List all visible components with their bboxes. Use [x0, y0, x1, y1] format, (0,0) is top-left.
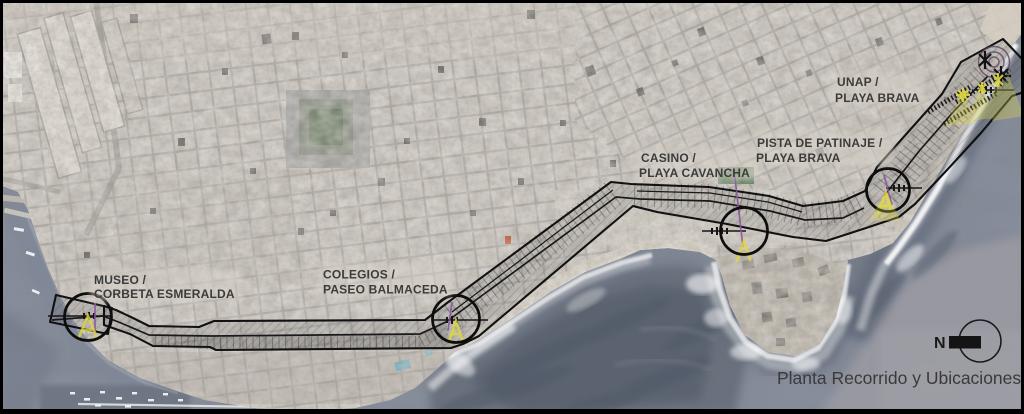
svg-text:CASINO /: CASINO / — [641, 151, 696, 165]
svg-text:PLAYA BRAVA: PLAYA BRAVA — [756, 151, 841, 165]
svg-text:MUSEO /: MUSEO / — [94, 273, 147, 287]
svg-text:Planta Recorrido y Ubicaciones: Planta Recorrido y Ubicaciones — [777, 368, 1021, 388]
svg-text:PLAYA CAVANCHA: PLAYA CAVANCHA — [639, 166, 750, 180]
svg-text:PISTA DE PATINAJE /: PISTA DE PATINAJE / — [757, 136, 883, 150]
svg-text:COLEGIOS /: COLEGIOS / — [323, 268, 395, 282]
svg-text:PLAYA BRAVA: PLAYA BRAVA — [835, 91, 920, 105]
svg-text:N: N — [934, 335, 946, 352]
svg-text:CORBETA ESMERALDA: CORBETA ESMERALDA — [94, 287, 235, 301]
svg-text:PASEO BALMACEDA: PASEO BALMACEDA — [323, 283, 448, 297]
svg-text:UNAP /: UNAP / — [837, 75, 879, 89]
